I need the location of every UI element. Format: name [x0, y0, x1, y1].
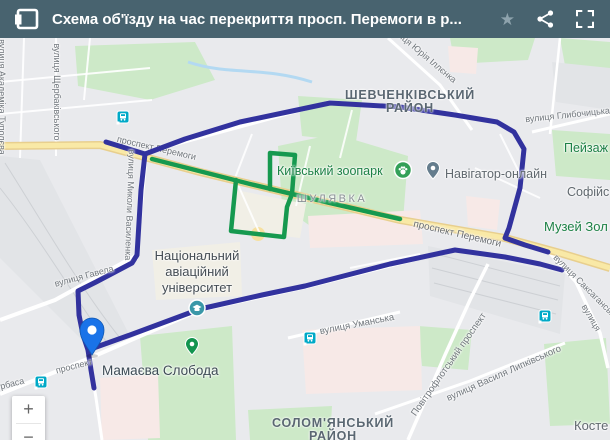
zoom-in-button[interactable]: +	[12, 396, 45, 423]
route-blue-south[interactable]	[88, 250, 562, 350]
transit-station-icon[interactable]	[304, 332, 317, 346]
zoom-control: + −	[12, 396, 45, 440]
routes-overlay	[0, 38, 610, 440]
map-title[interactable]: Схема об'їзду на час перекриття просп. П…	[52, 11, 490, 28]
transit-station-icon[interactable]	[117, 111, 130, 125]
route-blue-north[interactable]	[145, 103, 548, 252]
share-icon[interactable]	[537, 10, 554, 28]
navigator-pin-icon[interactable]	[427, 162, 440, 180]
header-actions: ★	[500, 10, 594, 28]
map-header: Схема об'їзду на час перекриття просп. П…	[0, 0, 610, 38]
mamaieva-pin-icon[interactable]	[186, 338, 199, 356]
route-green-main[interactable]	[152, 159, 400, 219]
zoo-paw-icon[interactable]	[395, 162, 412, 179]
my-maps-embed: Схема об'їзду на час перекриття просп. П…	[0, 0, 610, 440]
university-poi-icon[interactable]	[189, 300, 205, 316]
fullscreen-icon[interactable]	[576, 10, 594, 28]
route-green-loop[interactable]	[231, 153, 295, 237]
transit-station-icon[interactable]	[35, 376, 48, 390]
zoom-out-button[interactable]: −	[12, 424, 45, 440]
star-icon[interactable]: ★	[500, 11, 515, 28]
transit-station-icon[interactable]	[539, 310, 552, 324]
open-panel-icon[interactable]	[13, 8, 39, 30]
map-canvas[interactable]: проспект Перемоги	[0, 38, 610, 440]
map-marker[interactable]	[80, 318, 104, 358]
